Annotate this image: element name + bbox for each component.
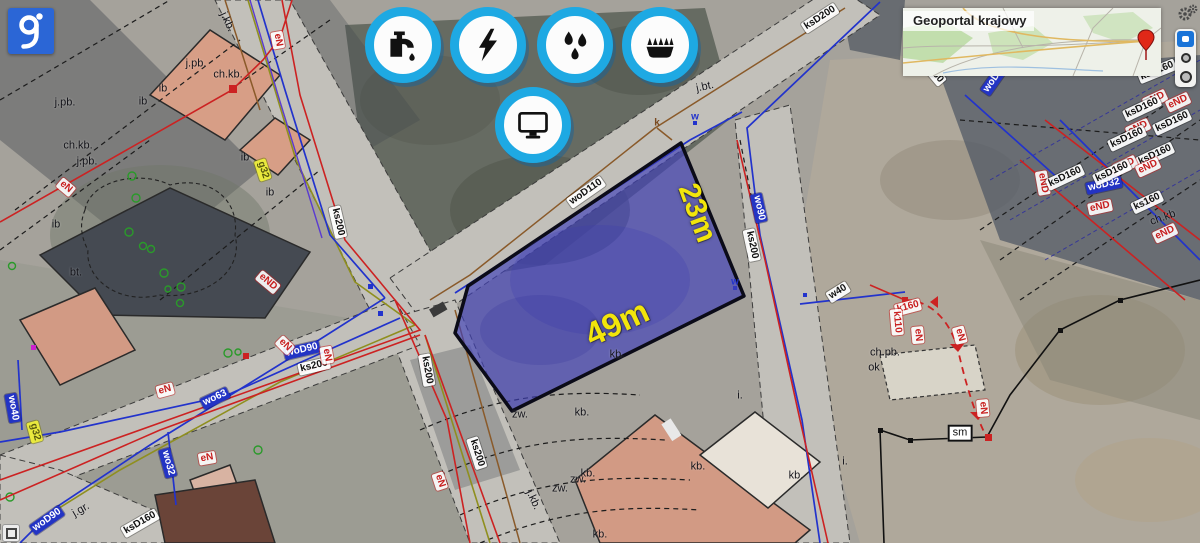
lightning-icon	[470, 27, 506, 63]
active-layer-button[interactable]	[1177, 31, 1194, 47]
monitor-button[interactable]	[495, 87, 571, 163]
aerial-map-canvas[interactable]	[0, 0, 1200, 543]
geoportal-logo	[8, 8, 54, 54]
gas-button[interactable]	[622, 7, 698, 83]
map-viewport[interactable]: woD110ksD200ks200woD90ks200ks200ks200eNw…	[0, 0, 1200, 543]
map-controls	[1175, 29, 1196, 87]
minimap-title: Geoportal krajowy	[903, 11, 1034, 31]
settings-gear-icon[interactable]	[1178, 4, 1198, 22]
map-control-button-1[interactable]	[1177, 50, 1194, 66]
faucet-icon	[385, 27, 421, 63]
active-layer-dot-icon	[1182, 36, 1189, 42]
square-icon	[6, 528, 17, 539]
ring-icon	[1181, 53, 1191, 63]
minimap[interactable]: Geoportal krajowy	[903, 8, 1161, 76]
monitor-icon	[515, 107, 551, 143]
electricity-button[interactable]	[450, 7, 526, 83]
sewage-button[interactable]	[537, 7, 613, 83]
ring-icon	[1180, 71, 1192, 83]
water-drops-icon	[557, 27, 593, 63]
map-corner-button[interactable]	[2, 524, 20, 542]
water-supply-button[interactable]	[365, 7, 441, 83]
geoportal-g-icon	[8, 8, 54, 54]
gas-burner-icon	[642, 27, 678, 63]
map-control-button-2[interactable]	[1177, 69, 1194, 85]
